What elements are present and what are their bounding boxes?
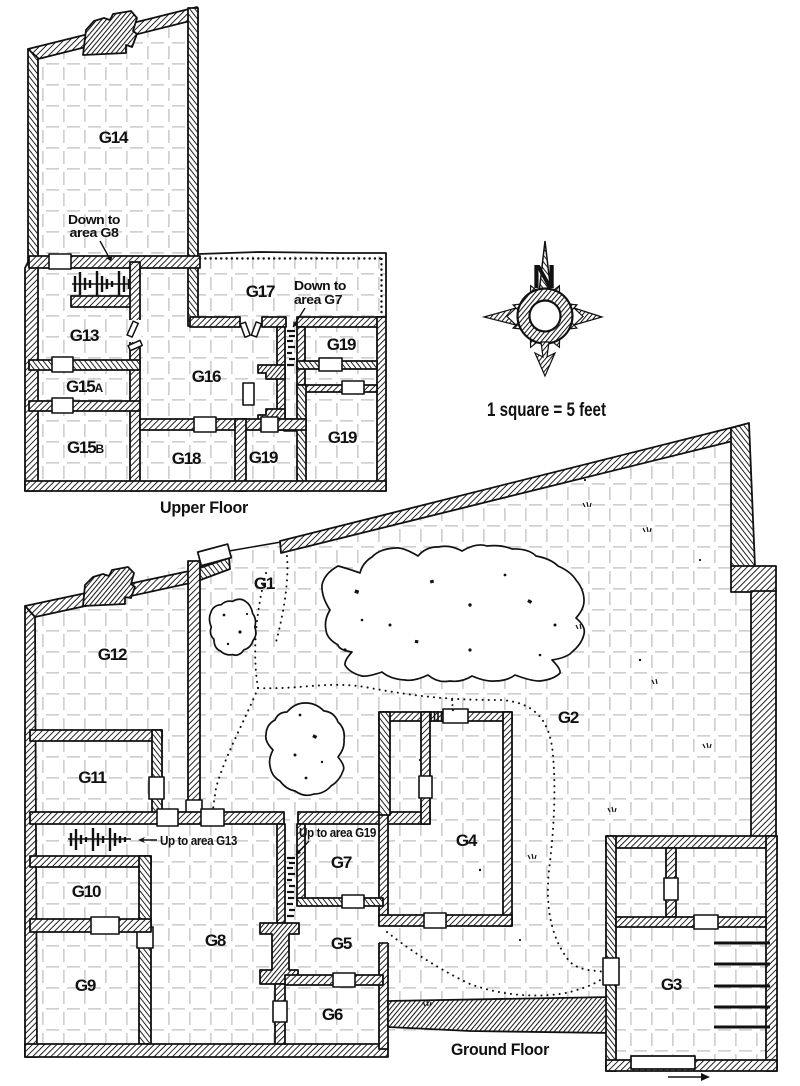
svg-text:G11: G11 — [78, 768, 106, 787]
svg-text:G6: G6 — [322, 1005, 343, 1024]
svg-text:G19: G19 — [328, 428, 357, 447]
svg-text:Down to: Down to — [294, 279, 347, 293]
svg-text:G5: G5 — [331, 934, 352, 953]
svg-text:G7: G7 — [331, 853, 352, 872]
svg-text:G17: G17 — [246, 282, 275, 301]
svg-text:G16: G16 — [192, 367, 221, 386]
svg-text:G12: G12 — [98, 645, 127, 664]
svg-text:G19: G19 — [327, 335, 356, 354]
svg-text:Upper Floor: Upper Floor — [160, 498, 249, 517]
svg-text:Up to area G13: Up to area G13 — [160, 834, 237, 848]
svg-text:G1: G1 — [254, 574, 275, 593]
svg-text:G9: G9 — [75, 976, 96, 995]
svg-text:G18: G18 — [172, 449, 201, 468]
svg-text:G14: G14 — [99, 128, 129, 147]
svg-text:G19: G19 — [249, 448, 278, 467]
svg-text:Down to: Down to — [68, 213, 121, 227]
svg-text:G3: G3 — [661, 975, 682, 994]
svg-text:G10: G10 — [72, 882, 101, 901]
svg-text:area G7: area G7 — [294, 293, 342, 307]
svg-text:area G8: area G8 — [70, 226, 119, 240]
svg-text:N: N — [532, 258, 556, 295]
svg-text:G4: G4 — [456, 831, 478, 850]
svg-text:G13: G13 — [70, 326, 99, 345]
svg-text:1 square = 5 feet: 1 square = 5 feet — [487, 400, 607, 421]
svg-text:Ground Floor: Ground Floor — [451, 1040, 550, 1059]
svg-text:G2: G2 — [558, 708, 579, 727]
svg-text:G8: G8 — [205, 931, 226, 950]
svg-text:Up to area G19: Up to area G19 — [299, 826, 376, 840]
